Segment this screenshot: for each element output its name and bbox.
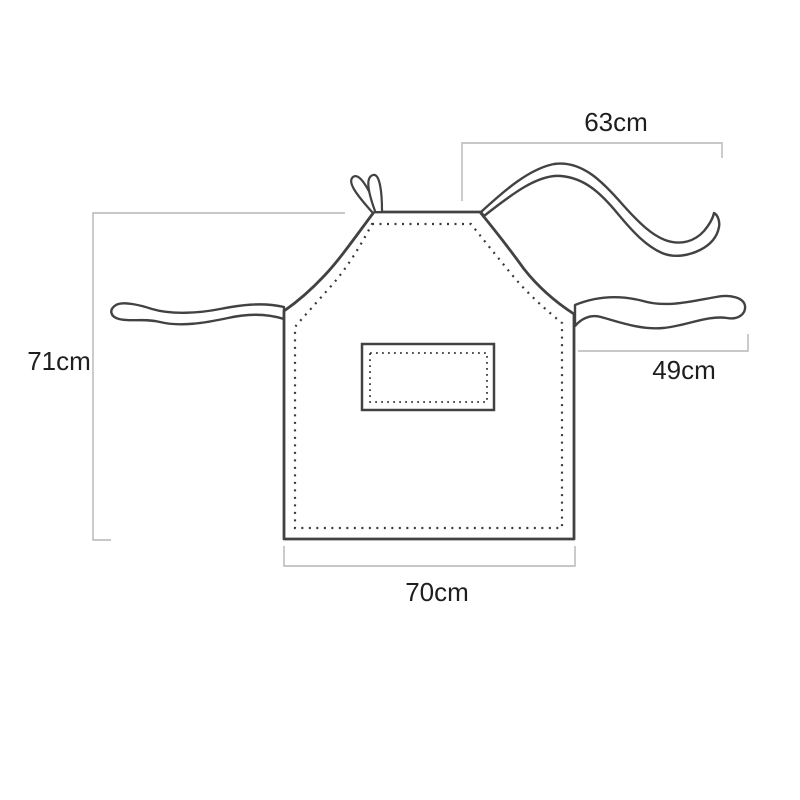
dimension-label-waist-tie: 49cm — [624, 355, 744, 385]
apron-dimension-diagram: 63cm 71cm 49cm 70cm — [0, 0, 800, 800]
pocket — [362, 344, 494, 410]
dimension-line-waist-tie — [578, 334, 748, 351]
dimension-line-width — [284, 546, 575, 566]
dimension-label-height: 71cm — [0, 346, 119, 376]
waist-tie-left — [111, 303, 284, 324]
dimension-label-neck-strap: 63cm — [556, 107, 676, 137]
apron-line-drawing — [0, 0, 800, 800]
dimension-label-width: 70cm — [377, 577, 497, 607]
waist-tie-right — [575, 296, 745, 328]
neck-strap — [481, 164, 719, 256]
dimension-line-neck-strap — [462, 143, 722, 201]
